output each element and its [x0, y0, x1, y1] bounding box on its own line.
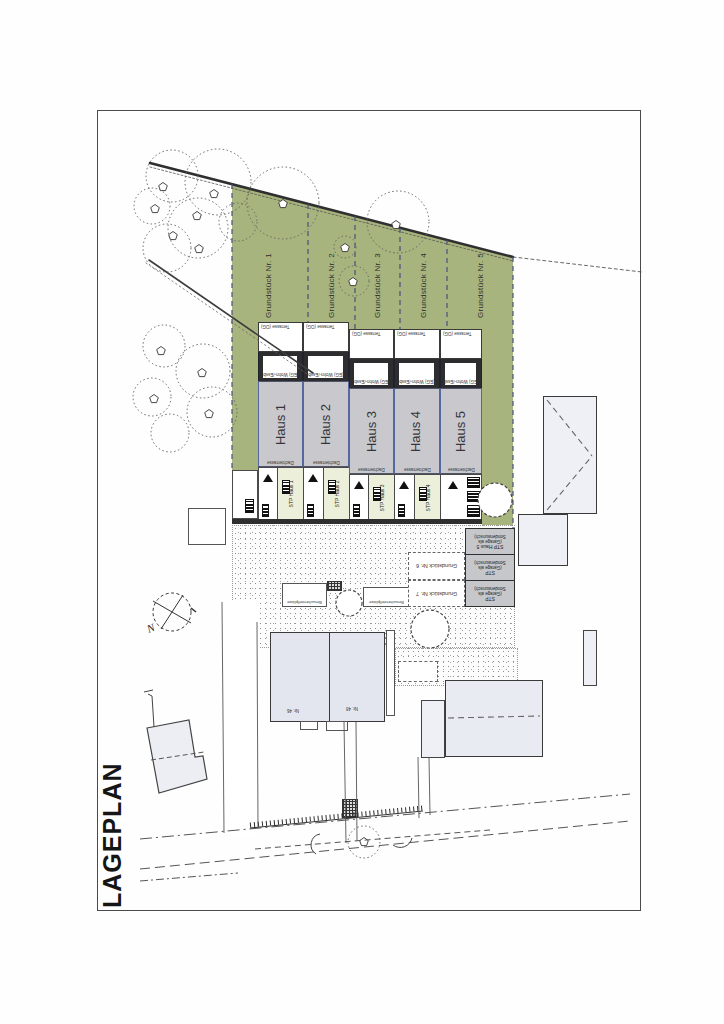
visitor-parking-1: Besucherstellplätze	[282, 583, 327, 607]
walkway	[303, 467, 324, 521]
house-column-1: Terrasse (OG) (EG) Wohn-/Essb. Haus 1 Da…	[258, 322, 303, 521]
room-label: (EG) Wohn-/Essb.	[262, 372, 298, 377]
terrace-box: Terrasse (OG)	[303, 322, 349, 352]
roof-terrace-label: Dachterrasse	[358, 467, 385, 472]
roof-band: (EG) Wohn-/Essb.	[394, 359, 440, 388]
walkway	[440, 474, 482, 521]
parking-spot: STP Haus 4	[415, 474, 443, 521]
bin-box-icon	[373, 487, 381, 501]
bin-box-icon	[328, 480, 336, 494]
dormer-box: (EG) Wohn-/Essb.	[308, 356, 343, 378]
walkway-left	[232, 470, 258, 519]
garage-box-3: STP(Garage als Sonderwunsch)	[465, 581, 515, 607]
entrance-arrow-icon	[448, 481, 458, 489]
garage-title: STP	[466, 596, 514, 602]
site-plan-sheet: Grundstück Nr. 1 Grundstück Nr. 2 Grunds…	[0, 0, 724, 1024]
neighbor-building-east-annex	[518, 514, 568, 566]
building-annex	[300, 721, 318, 730]
plot-label-6: Grundstück Nr. 6	[416, 563, 457, 569]
parking-spot: STP Haus 1	[278, 467, 306, 521]
entrance-strip: STP Haus 4	[394, 474, 440, 521]
garage-note: (Garage als Sonderwunsch)	[466, 585, 514, 596]
terrace-label: Terrasse (OG)	[261, 324, 290, 329]
garage-note: (Garage als Sonderwunsch)	[466, 559, 514, 570]
house-number: Nr. 48	[346, 706, 358, 711]
bin-box-icon	[419, 487, 427, 501]
room-label: (EG) Wohn-/Essb.	[353, 379, 389, 384]
house-body-1: Haus 1 Dachterrasse	[258, 381, 303, 467]
room-label: (EG) Wohn-/Essb.	[442, 379, 478, 384]
neighbor-shed	[583, 630, 597, 686]
visitor-parking-label: Besucherstellplätze	[369, 600, 404, 605]
house-body-5: Haus 5 Dachterrasse	[440, 388, 482, 474]
terrace-label: Terrasse (OG)	[397, 331, 426, 336]
neighbor-building-east	[543, 396, 597, 514]
roof-band: (EG) Wohn-/Essb.	[440, 359, 482, 388]
bin-box-icon	[262, 504, 269, 517]
neighbor-building-main: Nr. 46 Nr. 48	[270, 632, 385, 722]
dormer-box: (EG) Wohn-/Essb.	[354, 363, 388, 385]
bin-box-icon	[307, 504, 314, 517]
bin-box-icon	[467, 477, 480, 488]
bin-box-icon	[245, 499, 254, 513]
house-name: Haus 2	[318, 403, 333, 444]
walkway	[394, 474, 415, 521]
garage-box-1: STP Haus 5(Garage als Sonderwunsch)	[465, 528, 515, 555]
plot-label-4: Grundstück Nr. 4	[416, 230, 430, 340]
house-column-5: Terrasse (OG) (EG) Wohn-/Essb. Haus 5 Da…	[440, 329, 482, 521]
bin-box-icon	[467, 505, 480, 517]
plot-label-3: Grundstück Nr. 3	[370, 230, 384, 340]
building-annex	[326, 721, 348, 731]
visitor-parking-2: Besucherstellplätze	[363, 587, 410, 607]
parking-spot: STP Haus 3	[369, 474, 397, 521]
walkway	[349, 474, 369, 521]
roof-band: (EG) Wohn-/Essb.	[349, 359, 394, 388]
parking-spot: STP Haus 2	[324, 467, 352, 521]
entrance-arrow-icon	[399, 481, 409, 489]
paving-grid-icon	[342, 799, 358, 818]
building-divider	[329, 633, 330, 721]
plot-label-7: Grundstück Nr. 7	[416, 591, 457, 597]
garage-note: (Garage als Sonderwunsch)	[466, 533, 514, 544]
roof-terrace-label: Dachterrasse	[267, 460, 294, 465]
neighbor-building-south-annex	[421, 700, 445, 758]
terrace-box: Terrasse (OG)	[349, 329, 394, 359]
house-column-4: Terrasse (OG) (EG) Wohn-/Essb. Haus 4 Ve…	[394, 329, 440, 521]
house-column-3: Terrasse (OG) (EG) Wohn-/Essb. Haus 3 Da…	[349, 329, 394, 521]
house-column-2: Terrasse (OG) (EG) Wohn-/Essb. Haus 2 Da…	[303, 322, 349, 521]
walkway	[258, 467, 278, 521]
bin-box-icon	[282, 480, 290, 494]
terrace-label: Terrasse (OG)	[306, 324, 335, 329]
roof-band: (EG) Wohn-/Essb.	[258, 352, 303, 381]
house-name: Haus 4	[408, 410, 423, 451]
room-label: (EG) Wohn-/Essb.	[398, 379, 434, 384]
visitor-parking-label: Besucherstellplätze	[287, 600, 322, 605]
entrance-arrow-icon	[354, 481, 364, 489]
house-number: Nr. 46	[287, 708, 299, 713]
roof-band: (EG) Wohn-/Essb.	[303, 352, 349, 381]
entrance-strip: STP Haus 2	[303, 467, 349, 521]
bin-box-icon	[467, 491, 480, 502]
entrance-arrow-icon	[308, 474, 318, 482]
plot-7: Grundstück Nr. 7	[408, 580, 465, 607]
bin-box-icon	[353, 504, 360, 517]
page-title: LAGEPLAN	[98, 786, 136, 908]
house-name: Haus 1	[273, 403, 288, 444]
terrace-box: Terrasse (OG)	[394, 329, 440, 359]
house-body-4: Haus 4 Verkauft Dachterrasse	[394, 388, 440, 474]
terrace-label: Terrasse (OG)	[443, 331, 472, 336]
terrace-label: Terrasse (OG)	[352, 331, 381, 336]
dashed-plot-box	[398, 661, 438, 682]
building-strip	[386, 630, 395, 716]
house-body-3: Haus 3 Dachterrasse	[349, 388, 394, 474]
garage-title: STP	[466, 570, 514, 576]
existing-garage	[188, 508, 226, 545]
plot-label-5: Grundstück Nr. 5	[473, 230, 487, 340]
house-name: Haus 3	[364, 410, 379, 451]
paving-grid-icon	[327, 581, 342, 591]
entrance-strip: STP Haus 1	[258, 467, 303, 521]
roof-terrace-label: Dachterrasse	[404, 467, 431, 472]
dormer-box: (EG) Wohn-/Essb.	[399, 363, 434, 385]
garage-title: STP Haus 5	[466, 544, 514, 550]
room-label: (EG) Wohn-/Essb.	[307, 372, 343, 377]
entrance-strip	[440, 474, 482, 521]
house-name: Haus 5	[454, 410, 469, 451]
dormer-box: (EG) Wohn-/Essb.	[445, 363, 476, 385]
house-body-2: Haus 2 Dachterrasse	[303, 381, 349, 467]
roof-terrace-label: Dachterrasse	[313, 460, 340, 465]
garage-strip: STP Haus 5(Garage als Sonderwunsch) STP(…	[465, 528, 515, 607]
driveway-left	[220, 600, 260, 835]
bin-box-icon	[398, 504, 405, 517]
entrance-strip: STP Haus 3	[349, 474, 394, 521]
neighbor-building-south	[445, 680, 543, 757]
terrace-box: Terrasse (OG)	[440, 329, 482, 359]
plot-6: Grundstück Nr. 6	[408, 552, 465, 580]
garage-box-2: STP(Garage als Sonderwunsch)	[465, 555, 515, 581]
roof-terrace-label: Dachterrasse	[448, 467, 475, 472]
retaining-wall	[232, 519, 482, 524]
dormer-box: (EG) Wohn-/Essb.	[263, 356, 297, 378]
terrace-box: Terrasse (OG)	[258, 322, 303, 352]
entrance-arrow-icon	[263, 474, 273, 482]
